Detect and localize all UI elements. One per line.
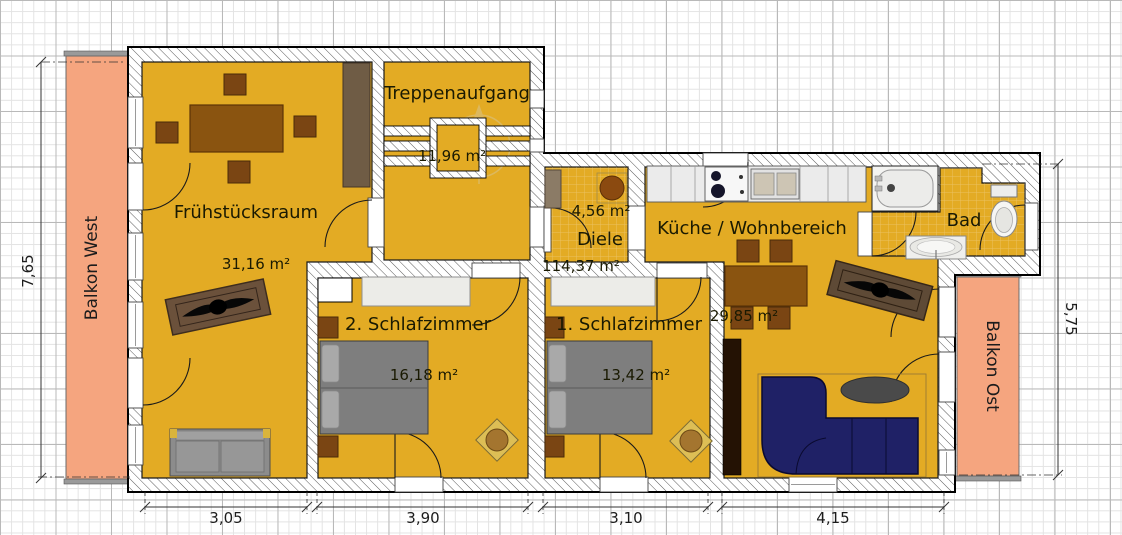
- chair: [224, 74, 246, 95]
- room-label-schlafzimmer1: 1. Schlafzimmer: [556, 314, 703, 335]
- shelf-unit: [723, 339, 741, 475]
- bathtub: [872, 166, 938, 211]
- round-table: [600, 176, 624, 200]
- dim-bottom-2: 3,90: [406, 509, 439, 527]
- door-opening: [628, 206, 645, 250]
- door-opening: [368, 198, 384, 247]
- window: [530, 139, 544, 152]
- sofa-gray: [170, 429, 270, 476]
- door-opening: [703, 153, 748, 167]
- chair: [294, 116, 316, 137]
- dim-bottom-1: 3,05: [209, 509, 242, 527]
- room-label-diele: Diele: [577, 229, 623, 250]
- room-area-schlafzimmer1: 13,42 m²: [602, 366, 670, 384]
- room-label-treppenaufgang: Treppenaufgang: [383, 83, 530, 104]
- door-opening: [939, 352, 955, 402]
- dining-table: [190, 105, 283, 152]
- stove-icon: [705, 167, 748, 201]
- floor-plan-canvas: Frühstücksraum 31,16 m² Treppenaufgang 1…: [0, 0, 1122, 535]
- dim-left-label: 7,65: [19, 254, 37, 287]
- door-opening: [600, 477, 648, 492]
- floor-plan-svg: Frühstücksraum 31,16 m² Treppenaufgang 1…: [0, 0, 1122, 535]
- room-label-bad: Bad: [947, 210, 982, 231]
- toilet: [991, 185, 1017, 237]
- door-opening: [128, 163, 143, 210]
- door-leaf: [544, 206, 551, 252]
- door-opening: [657, 263, 707, 278]
- door-opening: [395, 477, 443, 492]
- chair: [770, 240, 792, 262]
- door-opening: [858, 212, 872, 256]
- dining-table: [725, 266, 807, 306]
- door-opening: [939, 287, 955, 337]
- room-label-kueche: Küche / Wohnbereich: [657, 218, 847, 239]
- washbasin: [906, 236, 966, 259]
- chair: [737, 240, 759, 262]
- double-bed: [547, 341, 652, 434]
- chair: [228, 161, 250, 183]
- nightstand: [318, 436, 338, 457]
- wardrobe: [362, 277, 470, 306]
- wardrobe: [551, 277, 655, 306]
- balcony-west-label: Balkon West: [82, 215, 102, 320]
- wall-niche: [318, 278, 352, 302]
- room-area-fruehstuecksraum: 31,16 m²: [222, 255, 290, 273]
- room-label-schlafzimmer2: 2. Schlafzimmer: [345, 314, 492, 335]
- double-bed: [320, 341, 428, 434]
- chair: [156, 122, 178, 143]
- door-opening: [472, 263, 520, 278]
- sink-icon: [751, 169, 799, 199]
- room-area-kueche: 29,85 m²: [710, 307, 778, 325]
- room-area-treppenaufgang: 11,96 m²: [418, 147, 486, 165]
- balcony-east-label: Balkon Ost: [982, 320, 1002, 412]
- room-area-schlafzimmer2: 16,18 m²: [390, 366, 458, 384]
- dim-right-label: 5,75: [1062, 302, 1080, 335]
- door-opening: [530, 207, 544, 247]
- nightstand: [545, 436, 564, 457]
- room-area-diele: 4,56 m²: [572, 202, 631, 220]
- dim-bottom-4: 4,15: [816, 509, 849, 527]
- hall-cabinet: [545, 170, 561, 208]
- total-area-label: 114,37 m²: [542, 257, 620, 275]
- door-opening: [128, 358, 143, 408]
- door-opening: [1025, 203, 1038, 250]
- cabinet: [343, 63, 370, 187]
- room-label-fruehstuecksraum: Frühstücksraum: [174, 202, 318, 223]
- nightstand: [318, 317, 338, 338]
- kitchen-counter[interactable]: [647, 166, 866, 202]
- coffee-table: [841, 377, 909, 403]
- window: [530, 90, 544, 108]
- dim-bottom-3: 3,10: [609, 509, 642, 527]
